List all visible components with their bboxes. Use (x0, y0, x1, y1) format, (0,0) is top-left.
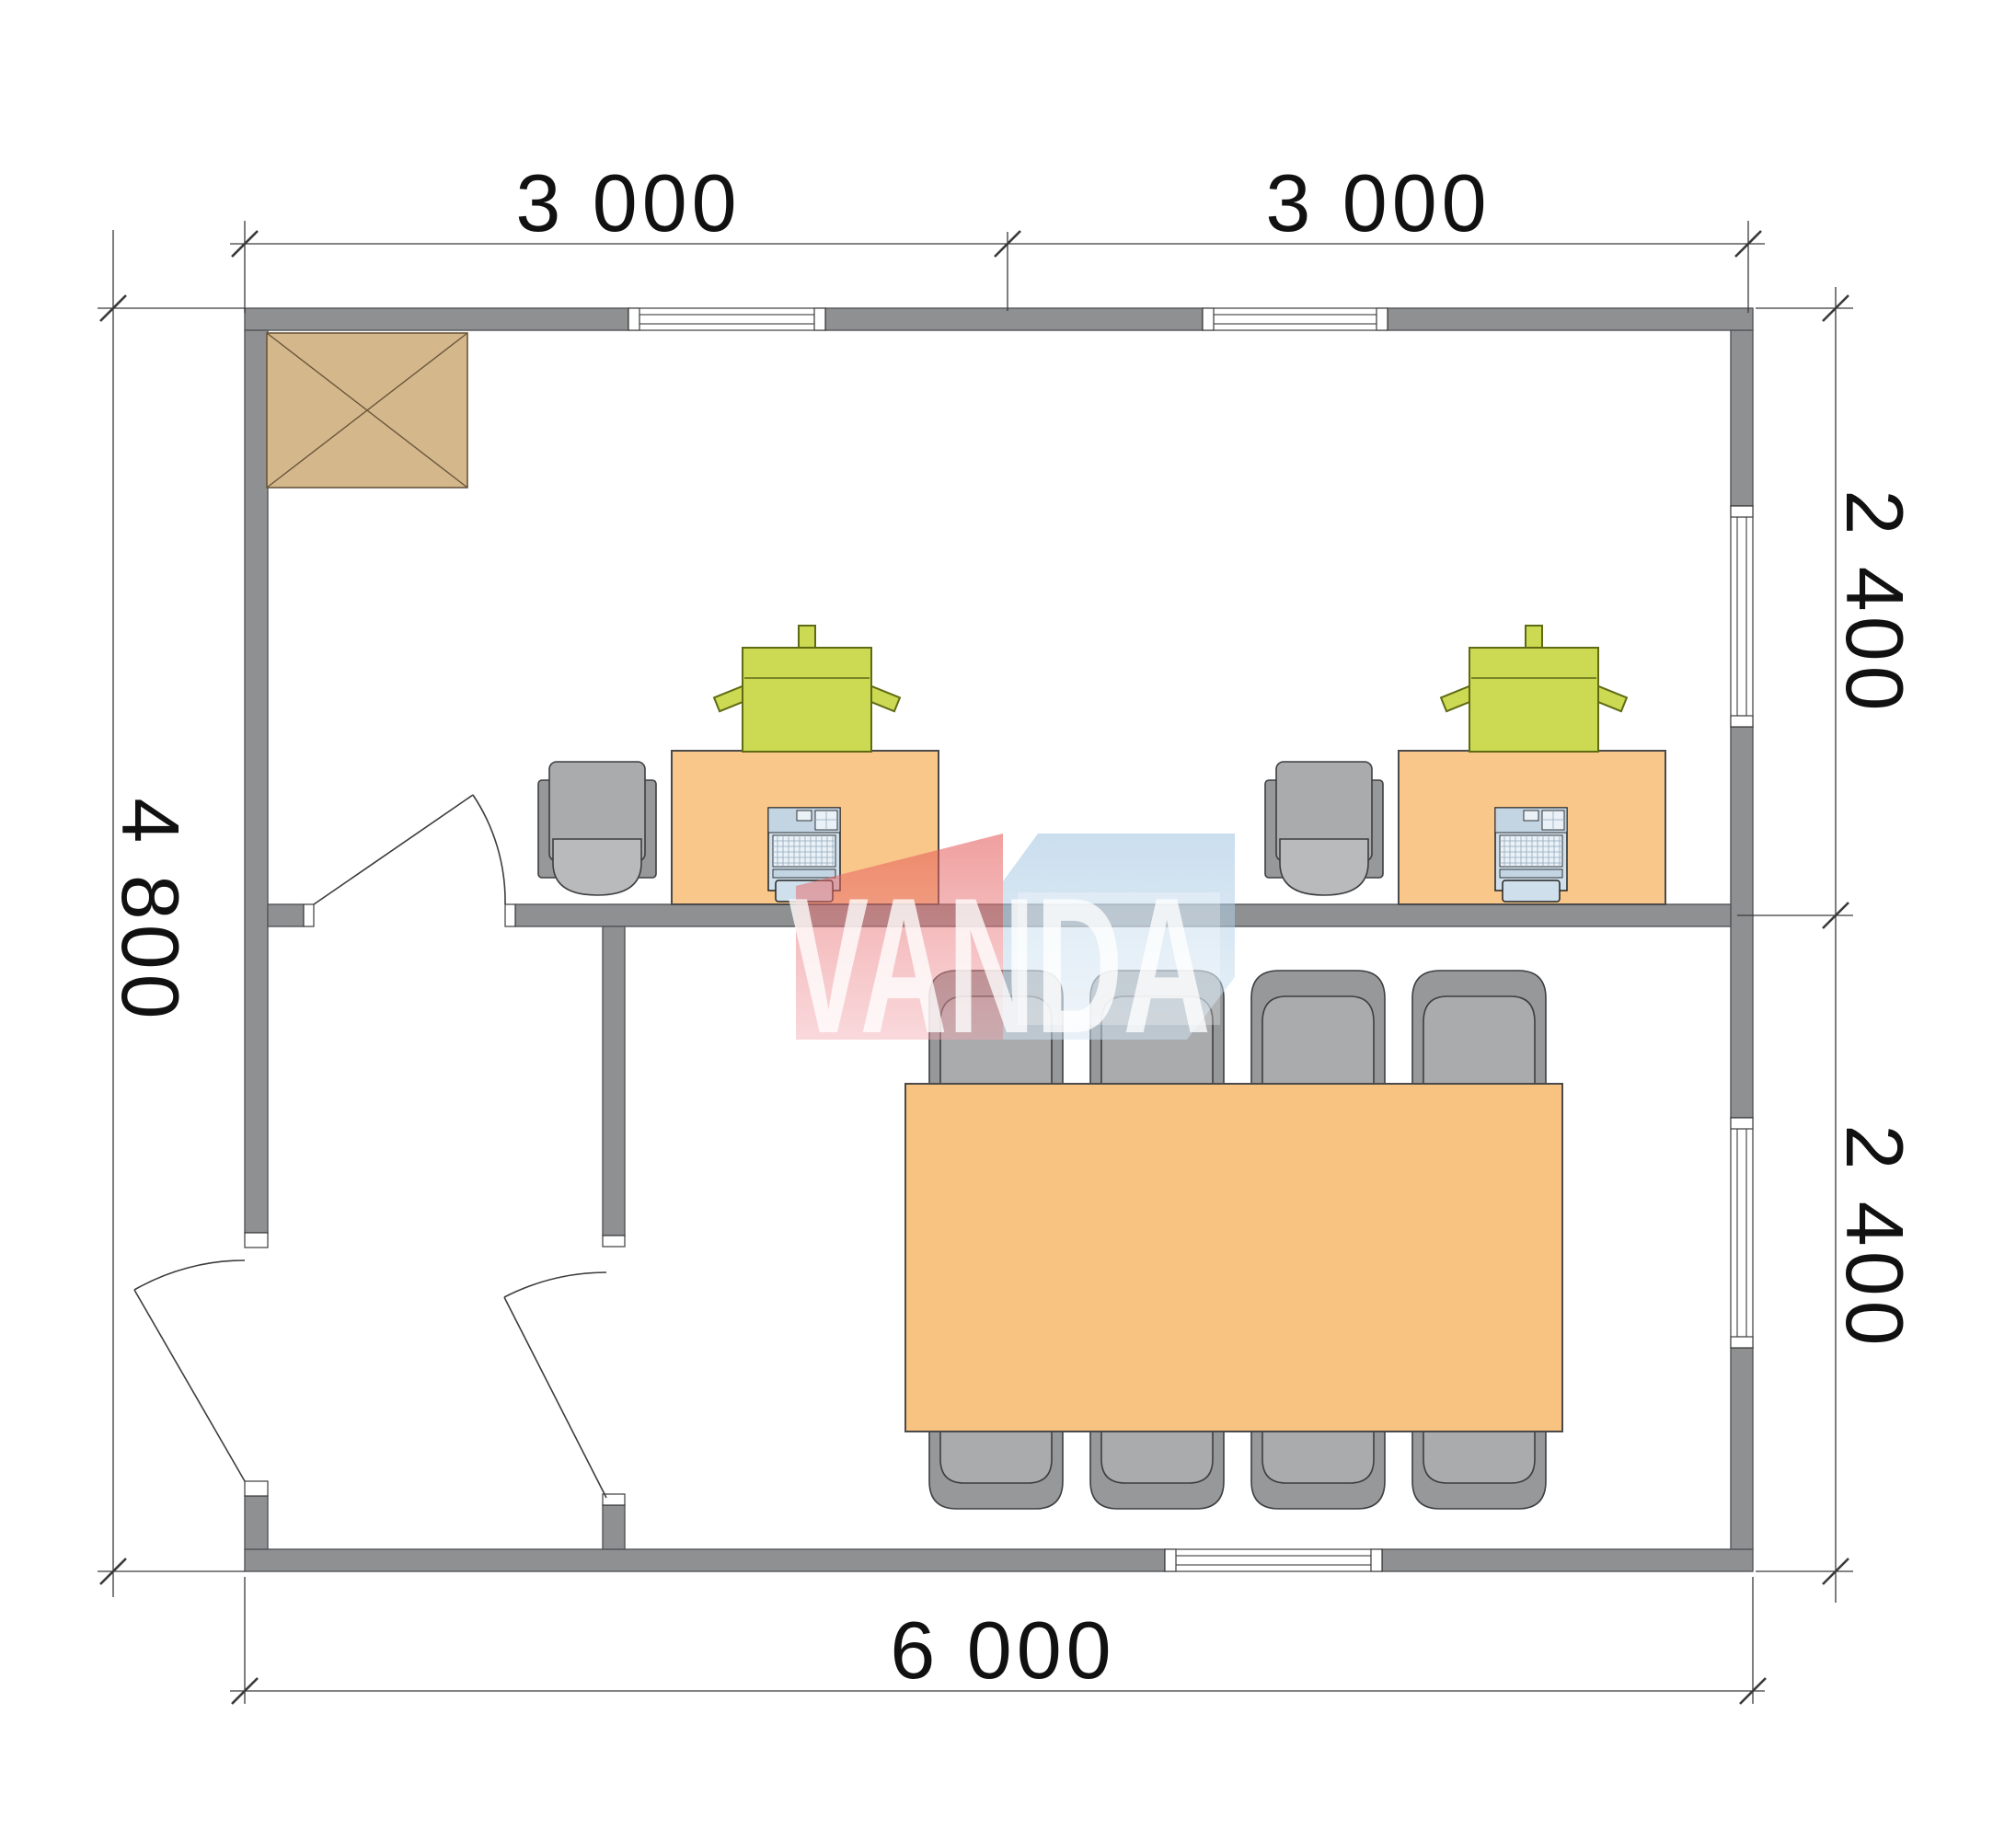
window-top-1 (628, 308, 825, 330)
wall-right-segment-3 (1731, 1348, 1753, 1549)
doors (134, 795, 606, 1498)
window-bottom (1165, 1549, 1382, 1571)
meeting-chair-top-3 (1251, 971, 1385, 1099)
meeting-chair-top-4 (1412, 971, 1546, 1099)
office-door-jamb-left (304, 904, 314, 926)
wall-left-segment-2 (245, 1496, 268, 1549)
dim-right-lower-label: 2 400 (1829, 1124, 1920, 1350)
dim-left-label: 4 800 (105, 798, 196, 1023)
dimension-right: 2 400 2 400 (1737, 287, 1920, 1603)
workstation-2 (1265, 626, 1665, 904)
cabinet (267, 333, 467, 488)
wall-right-segment-1 (1731, 330, 1753, 506)
wall-left-segment-1 (245, 330, 268, 1233)
dim-top-left-label: 3 000 (515, 157, 741, 248)
wall-right-segment-2 (1731, 727, 1753, 1118)
wall-interior-horizontal-stub (268, 904, 304, 926)
window-top-2 (1203, 308, 1388, 330)
office-door-jamb-right (505, 904, 515, 926)
entrance-door-jamb-bottom (245, 1481, 268, 1496)
entrance-door-jamb-top (245, 1233, 268, 1248)
dimension-left: 4 800 (98, 230, 245, 1597)
dim-bottom-label: 6 000 (890, 1604, 1115, 1696)
wall-top-segment-3 (1388, 308, 1753, 330)
meeting-door-jamb-top (603, 1236, 625, 1247)
office-room-door (314, 795, 505, 904)
watermark: VANDA (788, 834, 1235, 1074)
watermark-text: VANDA (788, 858, 1211, 1075)
dimension-top: 3 000 3 000 (230, 157, 1765, 313)
dimension-bottom: 6 000 (230, 1577, 1766, 1704)
floor-plan-drawing: 3 000 3 000 4 800 2 400 2 400 6 000 VAND… (0, 0, 2016, 1840)
wall-bottom-segment-2 (1382, 1549, 1753, 1571)
meeting-table (905, 1084, 1562, 1432)
dim-top-right-label: 3 000 (1265, 157, 1491, 248)
entrance-door (134, 1260, 245, 1481)
window-right-lower (1731, 1118, 1753, 1348)
wall-top-segment-2 (825, 308, 1203, 330)
dim-right-upper-label: 2 400 (1829, 489, 1920, 715)
wall-interior-partition-lower (603, 1505, 625, 1549)
wall-top-segment-1 (245, 308, 628, 330)
meeting-room-door (504, 1272, 606, 1498)
floor-plan-canvas: 3 000 3 000 4 800 2 400 2 400 6 000 VAND… (0, 0, 2016, 1840)
wall-bottom-segment-1 (245, 1549, 1165, 1571)
wall-interior-partition-upper (603, 926, 625, 1236)
window-right-upper (1731, 506, 1753, 727)
